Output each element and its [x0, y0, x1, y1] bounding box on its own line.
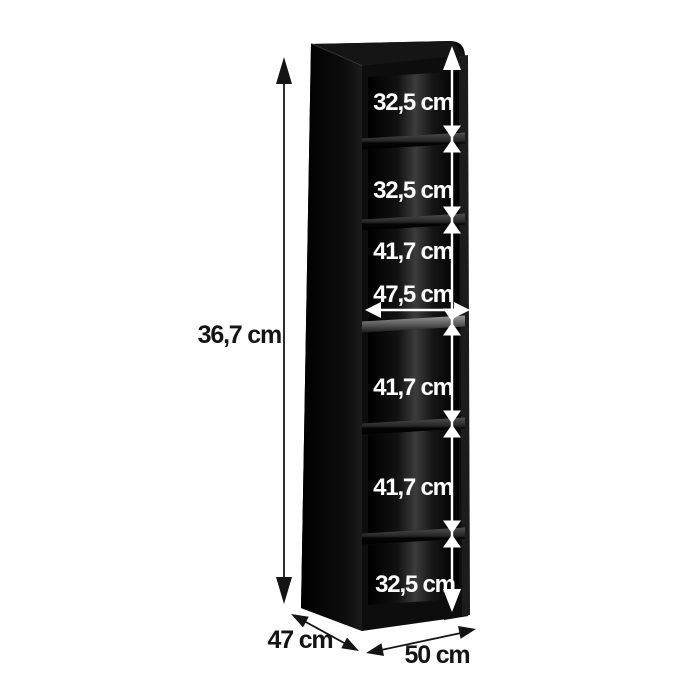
- furniture-dimension-diagram: 32,5 cm 32,5 cm 41,7 cm 47,5 cm 41,7 cm …: [0, 0, 700, 700]
- compartment-label-5: 41,7 cm: [373, 474, 453, 501]
- cabinet-side-panel: [301, 44, 362, 631]
- diagram-canvas: 32,5 cm 32,5 cm 41,7 cm 47,5 cm 41,7 cm …: [0, 0, 700, 700]
- width-arrow-left-icon: [366, 643, 384, 656]
- plinth-notch: [394, 625, 414, 643]
- compartment-label-6: 32,5 cm: [375, 571, 455, 598]
- compartment-label-3: 41,7 cm: [373, 238, 453, 265]
- total-height-arrow-up-icon: [276, 57, 292, 84]
- depth-arrow-downright-icon: [341, 638, 359, 651]
- width-dimension: 50 cm: [366, 626, 476, 669]
- compartment-label-2: 32,5 cm: [373, 177, 453, 204]
- depth-label: 47 cm: [268, 626, 333, 654]
- width-arrow-right-icon: [458, 626, 476, 639]
- inner-width-label: 47,5 cm: [373, 281, 453, 308]
- total-height-arrow-down-icon: [276, 577, 292, 604]
- cabinet: [301, 41, 470, 642]
- total-height-label: 36,7 cm: [198, 321, 281, 349]
- total-height-dimension: 36,7 cm: [198, 57, 292, 604]
- compartment-label-1: 32,5 cm: [373, 89, 453, 116]
- width-label: 50 cm: [405, 641, 470, 669]
- compartment-label-4: 41,7 cm: [373, 374, 453, 401]
